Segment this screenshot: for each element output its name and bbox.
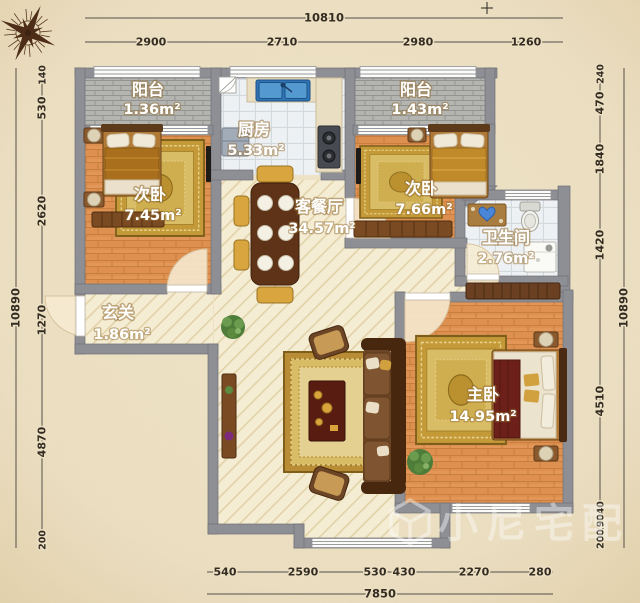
entry-label: 玄关 <box>102 303 134 322</box>
sofa <box>361 338 406 494</box>
window <box>505 191 551 200</box>
dim-left-seg: 2620 <box>36 195 49 226</box>
dim-right-seg: 470 <box>594 91 607 114</box>
dim-top-seg: 2980 <box>403 36 434 49</box>
master-area: 14.95m² <box>449 409 516 425</box>
window <box>360 67 476 78</box>
floor-plan-svg: 阳台 1.36m² 厨房 5.33m² 阳台 1.43m² 次卧 7.45m² … <box>0 0 640 603</box>
bedroom-right-area: 7.66m² <box>395 202 452 218</box>
dim-bottom-seg: 430 <box>393 566 416 579</box>
entry-door <box>76 296 85 336</box>
bedroom-left-label: 次卧 <box>134 185 166 204</box>
dim-left-seg: 4870 <box>36 426 49 457</box>
entry-area: 1.86m² <box>93 327 150 343</box>
balcony-left-area: 1.36m² <box>123 102 180 118</box>
nightstand <box>408 128 426 142</box>
kitchen-sink <box>256 80 310 101</box>
double-bed <box>492 348 567 442</box>
bedroom-left-door <box>167 285 207 292</box>
dining-chair <box>257 166 293 182</box>
kitchen-area: 5.33m² <box>227 143 284 159</box>
living-dining-area: 34.57m² <box>288 221 355 237</box>
coffee-table <box>309 381 345 441</box>
dim-left-total: 10890 <box>9 288 23 328</box>
bathroom-door <box>467 274 499 280</box>
bedroom-right-label: 次卧 <box>405 179 437 198</box>
dim-bottom-seg: 280 <box>529 566 552 579</box>
dim-top-seg: 1260 <box>511 36 542 49</box>
wardrobe <box>466 283 560 299</box>
watermark-brand: 小尼宅配 <box>438 501 630 547</box>
balcony-left-label: 阳台 <box>132 80 164 99</box>
dim-bottom-seg: 530 <box>364 566 387 579</box>
dim-left-seg: 530 <box>36 96 49 119</box>
balcony-right-label: 阳台 <box>400 80 432 99</box>
tv-cabinet <box>222 374 236 458</box>
dim-bottom-seg: 2270 <box>459 566 490 579</box>
dining-chair <box>234 196 249 226</box>
dim-bottom-seg: 2590 <box>288 566 319 579</box>
dining-chair <box>234 240 249 270</box>
dim-bottom-seg: 540 <box>214 566 237 579</box>
dim-right-seg: 4510 <box>594 385 607 416</box>
dim-top-seg: 2900 <box>136 36 167 49</box>
dim-right-seg: 1840 <box>594 143 607 174</box>
stove <box>318 126 340 168</box>
dim-left-seg: 1270 <box>36 304 49 335</box>
window <box>230 67 316 78</box>
dim-left-seg: 200 <box>38 530 49 550</box>
master-door <box>405 293 450 300</box>
bathroom-label: 卫生间 <box>482 228 530 247</box>
dim-bottom-total: 7850 <box>364 587 396 601</box>
kitchen-label: 厨房 <box>238 120 270 139</box>
wall-tv <box>206 146 211 182</box>
dining-chair <box>257 287 293 303</box>
dim-right-seg: 240 <box>596 64 607 84</box>
double-bed <box>428 124 490 198</box>
potted-plant <box>221 315 245 339</box>
window <box>94 67 200 78</box>
dim-left-seg: 140 <box>38 65 49 85</box>
bathroom-vanity <box>468 204 506 226</box>
dim-top-seg: 2710 <box>267 36 298 49</box>
dim-top-total: 10810 <box>304 11 344 25</box>
dresser <box>354 221 452 237</box>
master-label: 主卧 <box>467 385 499 404</box>
bathroom-area: 2.76m² <box>477 251 534 267</box>
bedroom-left-area: 7.45m² <box>124 208 181 224</box>
wall-tv <box>356 148 361 184</box>
dim-right-total: 10890 <box>617 288 631 328</box>
dim-right-seg: 1420 <box>594 229 607 260</box>
balcony-right-area: 1.43m² <box>391 102 448 118</box>
living-dining-label: 客餐厅 <box>295 197 343 216</box>
floor-plan-canvas: 阳台 1.36m² 厨房 5.33m² 阳台 1.43m² 次卧 7.45m² … <box>0 0 640 603</box>
potted-plant <box>407 449 433 475</box>
kitchen-balcony-door <box>219 77 236 93</box>
